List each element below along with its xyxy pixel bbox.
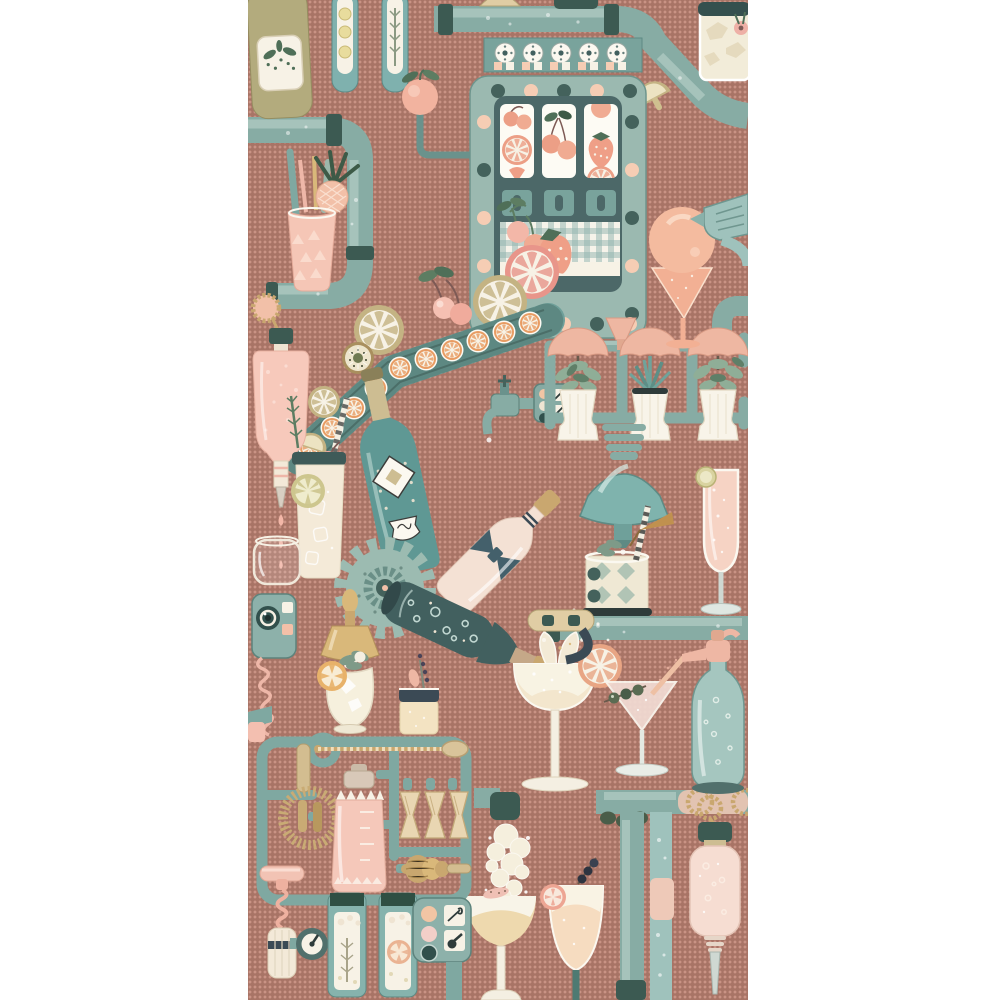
bottom-tubes [328, 893, 417, 997]
infusion-tube-lemon [332, 0, 358, 92]
julep-glass [317, 649, 373, 734]
pattern-panel [248, 0, 748, 1000]
belt-cherries [417, 265, 472, 325]
blush-champagne-bottle [433, 478, 572, 617]
dropper-bottle [690, 797, 740, 994]
jiggers [400, 792, 468, 838]
foam-spout [474, 792, 530, 903]
soda-siphon [682, 630, 744, 794]
stemless-glass [254, 537, 300, 585]
citrus-in-tube [387, 940, 411, 964]
peach-on-arm [400, 68, 470, 155]
cocktail-shaker [332, 764, 386, 892]
slot-machine [470, 38, 646, 345]
nick-nora-glass [540, 858, 603, 1000]
planter-cups [558, 390, 738, 440]
lime-wheel-garnish [291, 474, 325, 508]
plant-shelf [548, 318, 748, 440]
bell-widget [480, 0, 520, 6]
foam-coupe [466, 885, 536, 1000]
bottom-vertical-pipes [616, 812, 674, 1000]
iced-glass-top-right [698, 2, 748, 80]
sour-rocks-glass [399, 654, 439, 734]
juicer-funnel [580, 424, 668, 560]
illustration [248, 0, 748, 1000]
faucet [487, 375, 537, 443]
orange-wheel-garnish [317, 661, 347, 691]
faucet-handle-icon [498, 375, 511, 387]
intercom [248, 594, 296, 742]
margarita-coupe [514, 644, 622, 791]
herb-right [691, 355, 746, 392]
potted-herbs [553, 355, 746, 440]
button-panel [413, 898, 471, 1000]
wallpaper-sheet [0, 0, 1000, 1000]
orange-slice-icon [502, 135, 532, 165]
olive-syrup-bottle [248, 0, 313, 119]
champagne-flute [696, 467, 741, 615]
dark-widget [554, 0, 598, 9]
lemon-slice-icon [308, 386, 340, 418]
herb-center [630, 356, 670, 392]
berry-pick-icon [578, 858, 599, 884]
